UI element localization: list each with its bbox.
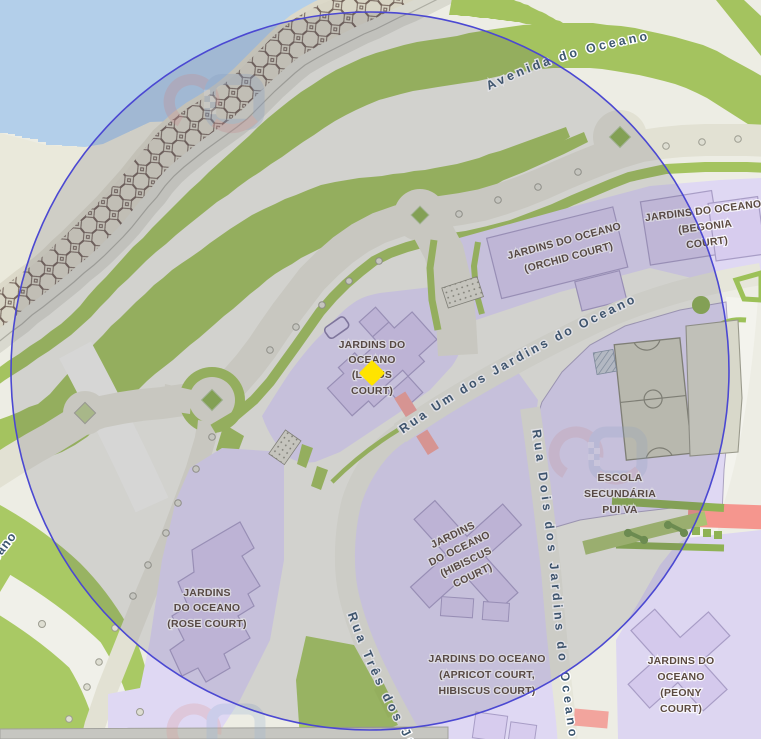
svg-text:(PEONY: (PEONY xyxy=(660,687,701,699)
svg-text:OCEANO: OCEANO xyxy=(657,671,704,683)
svg-text:COURT): COURT) xyxy=(660,703,702,715)
svg-text:JARDINS DO: JARDINS DO xyxy=(648,655,715,667)
